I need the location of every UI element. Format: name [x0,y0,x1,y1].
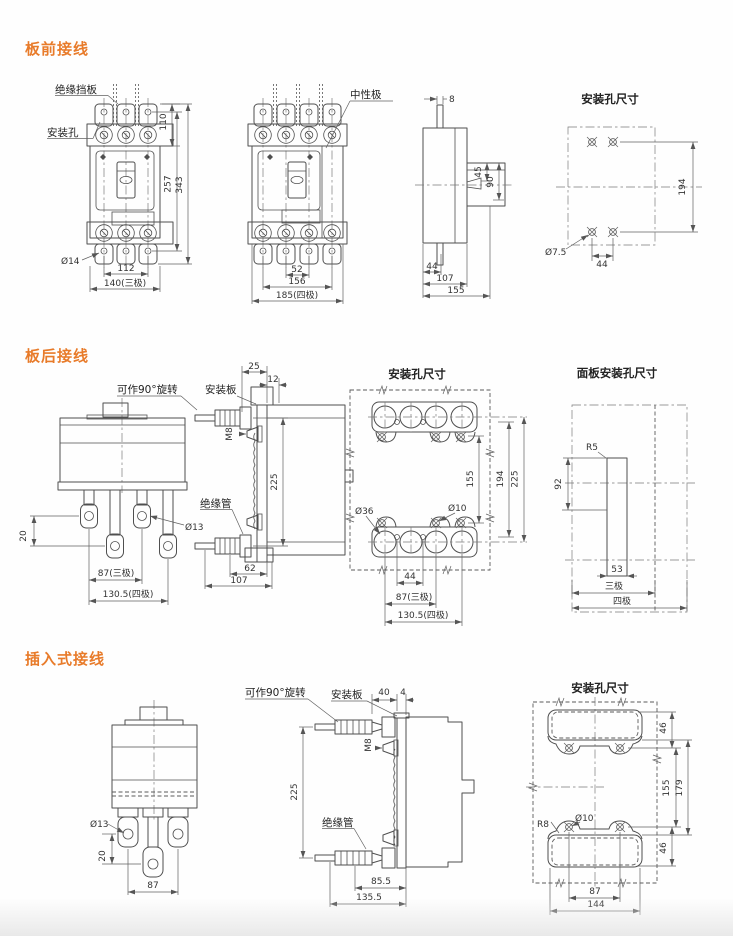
plugin-side-view: 可作90°旋转 安装板 40 4 [245,686,474,907]
dim-dia-13-plugin: Ø13 [90,819,109,830]
plugin-holes-title: 安装孔尺寸 [571,681,629,695]
dim-4pole-width: 四极 [613,595,631,607]
page-bottom-fade [0,898,733,936]
dim-45: 45 [474,166,484,177]
dim-130-5-holes: 130.5(四极) [398,609,449,621]
dim-225-holes: 225 [511,470,521,487]
dim-92: 92 [554,478,564,489]
dim-3pole-width: 三极 [605,580,623,592]
dim-44-side: 44 [426,262,438,272]
dim-107-rear: 107 [230,576,247,586]
dim-r5: R5 [586,443,598,453]
dim-dia-10-plugin: Ø10 [575,813,594,824]
dim-52: 52 [291,265,302,275]
label-insulation-tube: 绝缘管 [200,497,232,510]
rear-side-view: 安装板 25 12 M8 [195,362,353,589]
label-insulation-tube-plugin: 绝缘管 [322,816,354,829]
dim-185-4pole: 185(四极) [276,289,318,301]
dim-44-rear: 44 [404,572,416,582]
dim-53: 53 [611,565,622,575]
plugin-mounting-hole-diagram: 安装孔尺寸 R8 Ø10 46 15 [526,681,692,915]
front-wiring-drawings: 绝缘挡板 安装孔 Ø14 110 257 343 112 [0,58,733,316]
dim-343: 343 [175,176,185,193]
dim-87-plugin: 87 [147,881,158,891]
dim-194-rear: 194 [496,470,506,487]
label-mounting-plate-plugin: 安装板 [331,688,363,701]
dim-hole-dia-14: Ø14 [61,256,80,267]
dim-85-5: 85.5 [371,877,391,887]
label-rotatable-90-plugin: 可作90°旋转 [245,686,306,699]
dim-40: 40 [378,688,390,698]
dim-stud-dia-13: Ø13 [185,522,204,533]
dim-87-3pole: 87(三极) [98,567,134,579]
dim-110: 110 [159,113,169,130]
dim-156: 156 [288,277,305,287]
dim-12: 12 [267,375,278,385]
dim-257: 257 [164,175,174,192]
dim-179: 179 [675,779,685,796]
label-neutral-pole: 中性极 [350,88,382,101]
dim-4: 4 [400,688,406,698]
dim-20-plugin: 20 [98,850,108,862]
dim-87-plugin-holes: 87 [589,887,600,897]
dim-r8: R8 [537,820,549,830]
dim-44-holes: 44 [596,260,608,270]
dim-20-rear: 20 [19,530,29,542]
dim-46-top: 46 [659,722,669,734]
dim-225-plugin: 225 [290,783,300,800]
panel-holes-title: 面板安装孔尺寸 [577,366,658,380]
label-mounting-hole: 安装孔 [47,126,79,139]
panel-cutout-diagram: 面板安装孔尺寸 R5 92 53 三极 四极 [554,366,695,612]
dim-194: 194 [678,178,688,195]
dim-62: 62 [244,564,255,574]
rear-holes-title: 安装孔尺寸 [388,367,446,381]
rear-mounting-hole-diagram: 安装孔尺寸 [346,367,548,626]
dim-107-side: 107 [436,274,453,284]
dim-87-3pole-holes: 87(三极) [396,591,432,603]
dim-25: 25 [248,362,259,372]
plugin-front-view: Ø13 20 87 [90,700,197,895]
dim-225-rear: 225 [270,473,280,490]
mounting-hole-title: 安装孔尺寸 [581,92,639,106]
dim-140-3pole: 140(三极) [104,277,146,289]
dim-m8-rear: M8 [225,427,235,441]
dim-8: 8 [449,95,455,105]
breaker-front-4pole: 中性极 52 156 185(四极) [248,84,393,304]
dim-112: 112 [117,264,134,274]
breaker-front-3pole: 绝缘挡板 安装孔 Ø14 110 257 343 112 [47,83,192,292]
label-insulation-baffle: 绝缘挡板 [55,83,97,96]
mounting-hole-diagram: 安装孔尺寸 194 44 Ø7.5 [545,92,702,270]
breaker-rear-view: 可作90°旋转 Ø13 20 87(三极) [19,383,204,605]
section-heading-front-wiring: 板前接线 [25,38,89,59]
dim-90: 90 [486,176,496,188]
dim-dia-36: Ø36 [355,506,374,517]
dim-155-plugin: 155 [662,779,672,796]
datasheet-page: 板前接线 [0,0,733,936]
label-mounting-plate: 安装板 [205,383,237,396]
dim-155-side: 155 [447,286,464,296]
dim-130-5-4pole: 130.5(四极) [103,588,154,600]
plugin-wiring-drawings: Ø13 20 87 可作90°旋转 安装板 40 4 [0,664,733,936]
dim-m8-plugin: M8 [364,738,374,752]
rear-wiring-drawings: 可作90°旋转 Ø13 20 87(三极) [0,358,733,640]
dim-46-bottom: 46 [659,842,669,854]
dim-hole-dia-7-5: Ø7.5 [545,247,566,258]
breaker-side-view: 8 45 90 44 107 155 [415,95,512,299]
dim-155-rear: 155 [466,470,476,487]
dim-dia-10: Ø10 [448,503,467,514]
label-rotatable-90: 可作90°旋转 [117,383,178,396]
